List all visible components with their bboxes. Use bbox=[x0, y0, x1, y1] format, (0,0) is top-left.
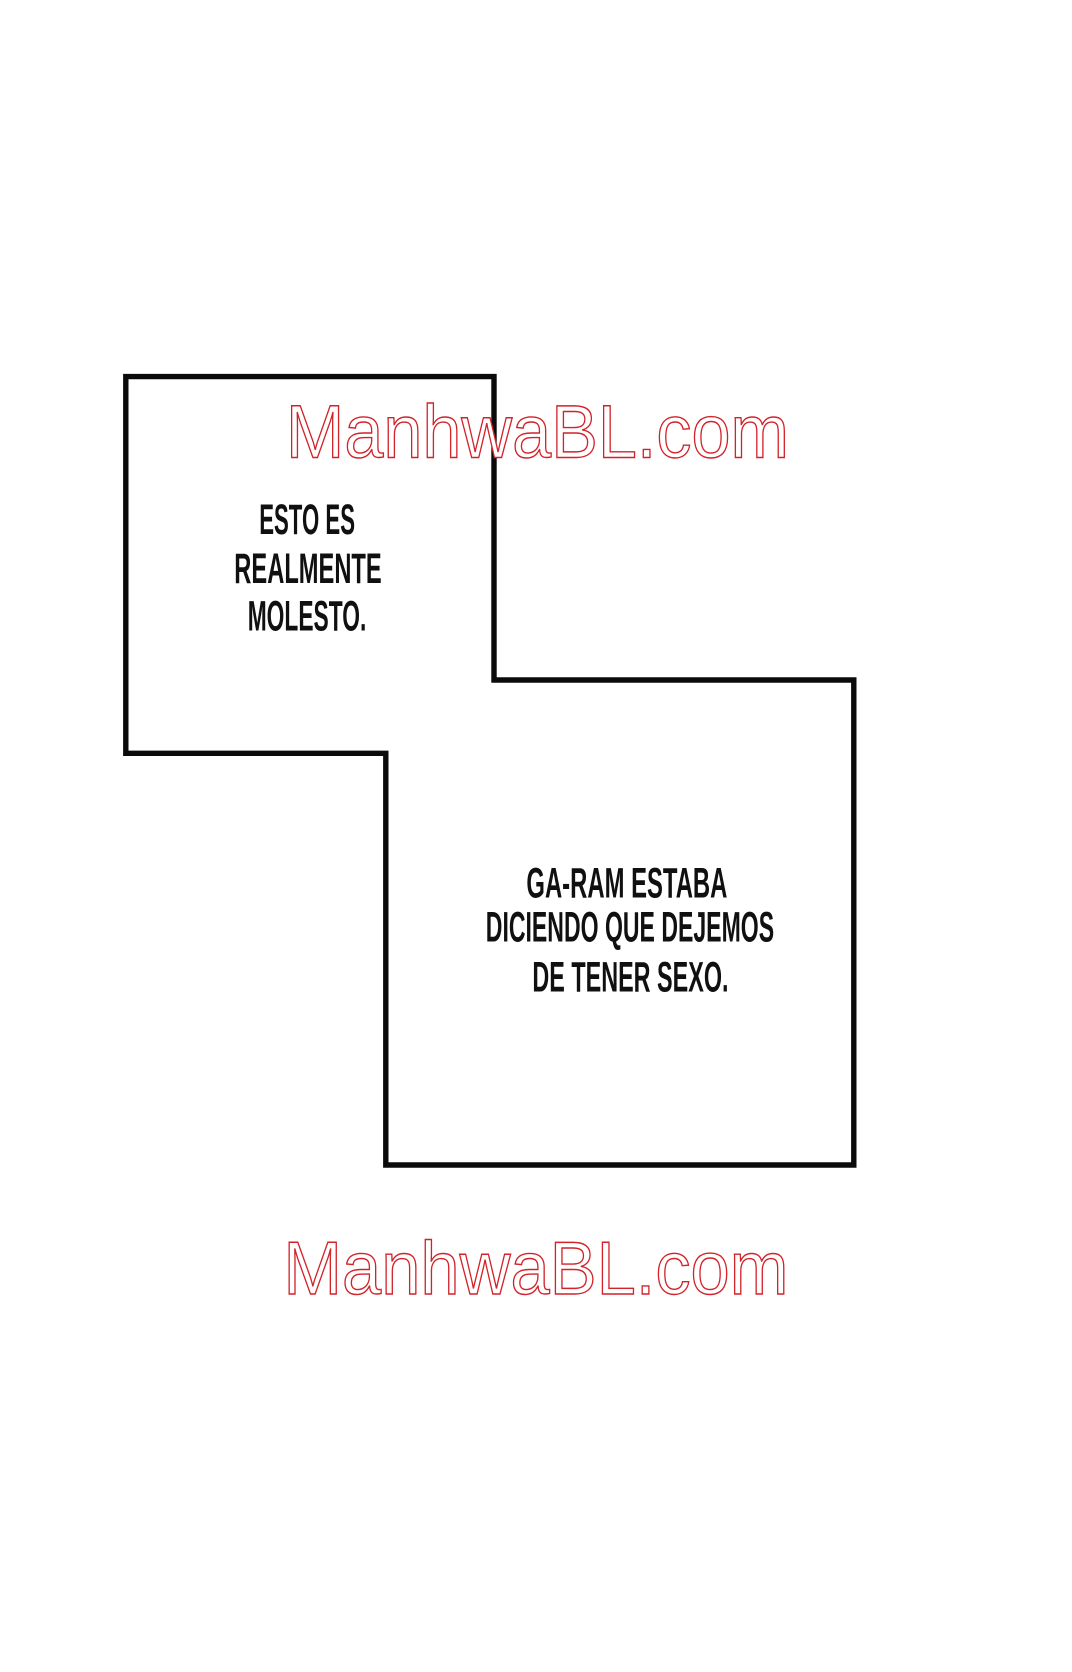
svg-text:GA-RAM ESTABA: GA-RAM ESTABA bbox=[526, 860, 727, 908]
svg-text:ManhwaBL.com: ManhwaBL.com bbox=[286, 390, 789, 474]
svg-text:REALMENTE: REALMENTE bbox=[234, 545, 381, 593]
svg-text:ManhwaBL.com: ManhwaBL.com bbox=[283, 1226, 788, 1310]
svg-text:DICIENDO QUE DEJEMOS: DICIENDO QUE DEJEMOS bbox=[486, 904, 774, 952]
svg-text:MOLESTO.: MOLESTO. bbox=[248, 593, 367, 641]
svg-text:DE TENER SEXO.: DE TENER SEXO. bbox=[532, 954, 728, 1002]
svg-text:ESTO ES: ESTO ES bbox=[259, 496, 355, 544]
